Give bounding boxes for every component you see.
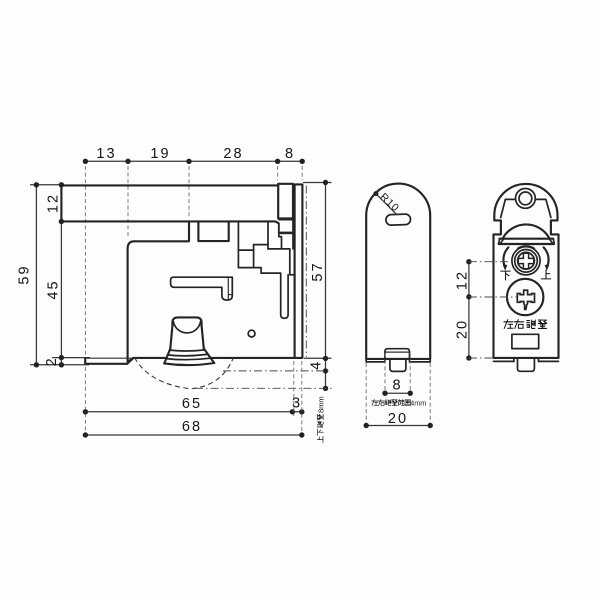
svg-text:65: 65 (182, 396, 202, 412)
svg-text:4: 4 (308, 360, 324, 370)
svg-text:3: 3 (292, 396, 302, 412)
svg-text:12: 12 (46, 193, 62, 213)
svg-text:4mm: 4mm (410, 399, 426, 408)
svg-text:28: 28 (223, 146, 243, 162)
svg-text:45: 45 (46, 279, 62, 299)
svg-text:8: 8 (285, 146, 295, 162)
svg-text:20: 20 (454, 319, 470, 339)
svg-text:2: 2 (44, 356, 60, 366)
svg-text:68: 68 (182, 419, 202, 435)
svg-text:12: 12 (455, 270, 471, 290)
svg-text:57: 57 (310, 261, 326, 281)
svg-text:59: 59 (17, 264, 33, 284)
svg-text:8mm: 8mm (316, 396, 325, 413)
svg-text:19: 19 (150, 146, 170, 162)
svg-text:13: 13 (96, 146, 116, 162)
svg-text:8: 8 (392, 378, 402, 394)
svg-text:20: 20 (388, 411, 408, 427)
